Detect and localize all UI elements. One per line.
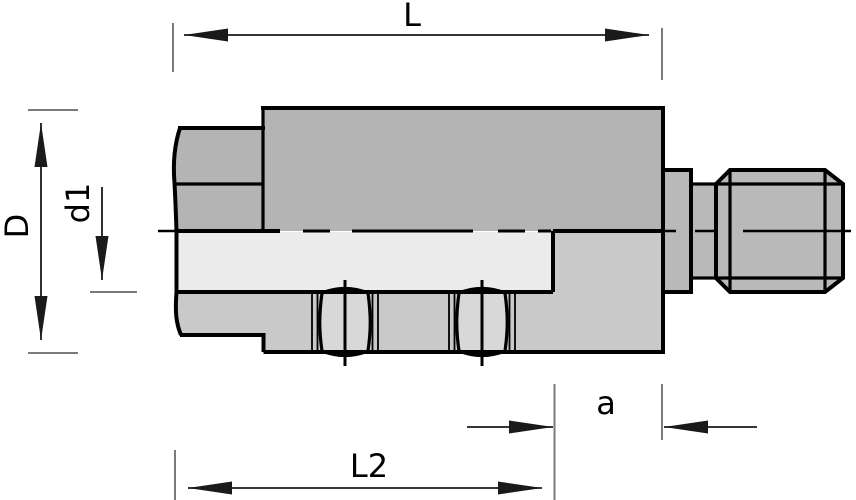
nut-upper-fill — [175, 128, 263, 231]
dim-label-L2: L2 — [350, 447, 388, 485]
body-upper-fill — [263, 108, 663, 231]
dim-label-D: D — [0, 214, 36, 239]
dimension-L: L — [173, 0, 662, 80]
fitting-half-section-drawing: L D d1 a L2 — [0, 0, 856, 500]
dimension-d1: d1 — [59, 183, 137, 292]
D-arrowhead-down — [35, 296, 48, 340]
a-arrowhead-left — [664, 421, 708, 434]
dimension-L2: L2 — [175, 447, 542, 500]
L-arrowhead-left — [184, 29, 228, 42]
D-arrowhead-up — [35, 123, 48, 167]
dim-label-a: a — [596, 384, 616, 422]
L2-arrowhead-left — [188, 482, 232, 495]
dimension-D: D — [0, 110, 78, 353]
dimension-a: a — [467, 384, 757, 500]
d1-arrowhead-down — [96, 236, 109, 280]
dim-label-L: L — [403, 0, 421, 34]
bore-fill — [177, 232, 554, 292]
L2-arrowhead-right — [498, 482, 542, 495]
technical-drawing-canvas: L D d1 a L2 — [0, 0, 856, 500]
dim-label-d1: d1 — [59, 183, 97, 224]
L-arrowhead-right — [605, 29, 649, 42]
a-arrowhead-right — [509, 421, 553, 434]
